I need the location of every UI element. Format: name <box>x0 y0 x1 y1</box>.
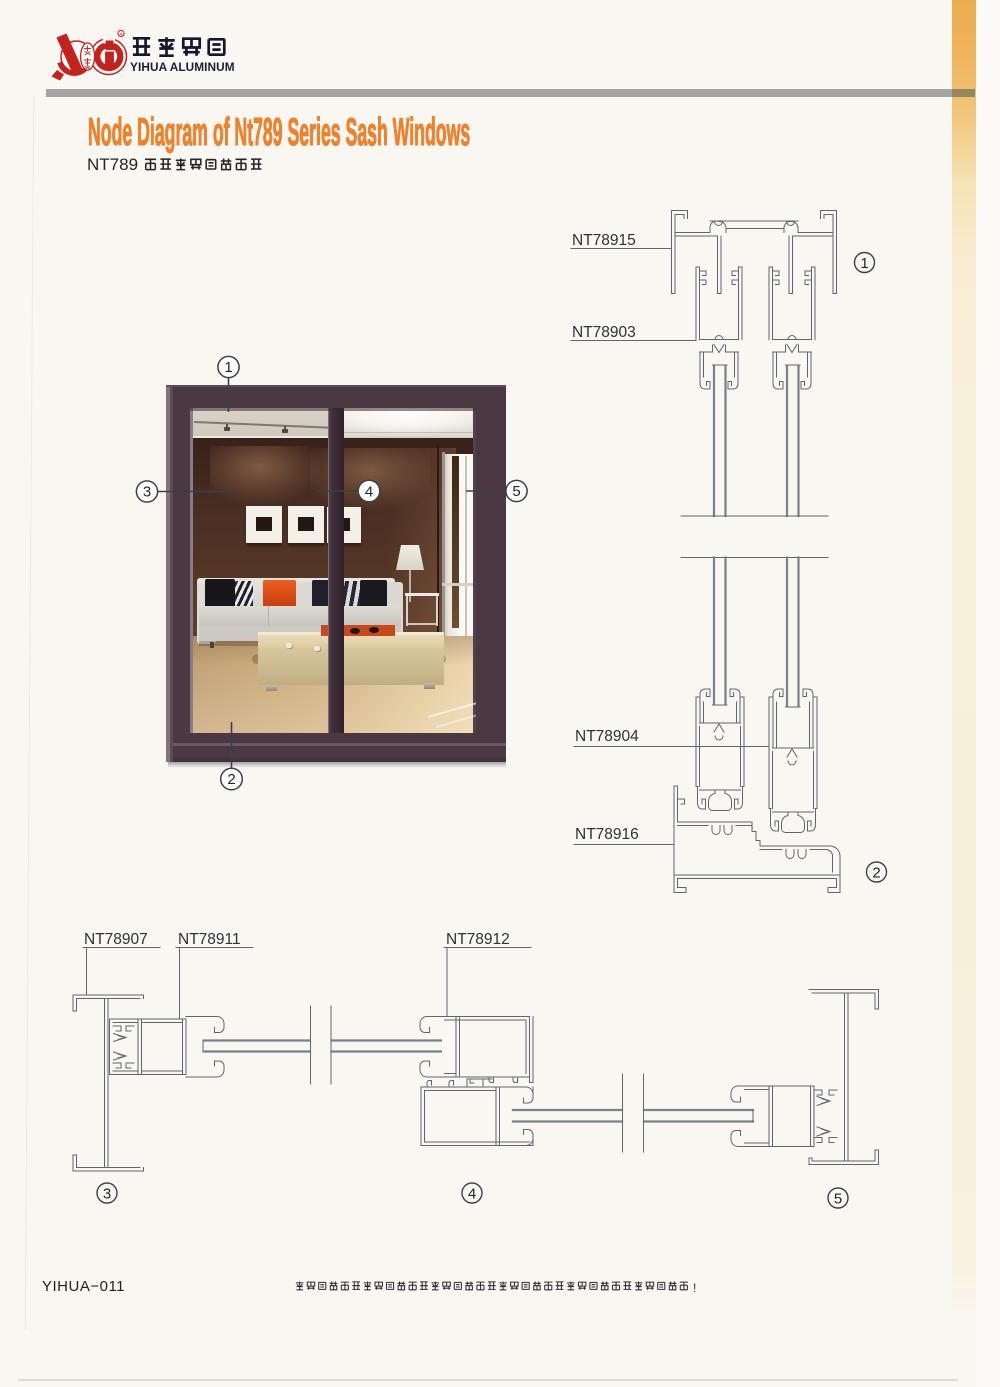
svg-text:4: 4 <box>468 1186 476 1203</box>
svg-text:NT78911: NT78911 <box>178 931 241 948</box>
svg-text:1: 1 <box>860 255 868 272</box>
svg-text:3: 3 <box>103 1186 111 1203</box>
svg-text:NT78912: NT78912 <box>446 931 510 948</box>
svg-text:NT78915: NT78915 <box>572 232 636 249</box>
svg-text:NT78904: NT78904 <box>575 728 639 745</box>
svg-text:5: 5 <box>834 1191 842 1208</box>
svg-text:NT78916: NT78916 <box>575 826 639 843</box>
svg-text:NT78903: NT78903 <box>572 324 636 341</box>
svg-text:2: 2 <box>872 865 880 882</box>
svg-text:!: ! <box>693 1281 696 1295</box>
svg-text:NT78907: NT78907 <box>84 931 148 948</box>
